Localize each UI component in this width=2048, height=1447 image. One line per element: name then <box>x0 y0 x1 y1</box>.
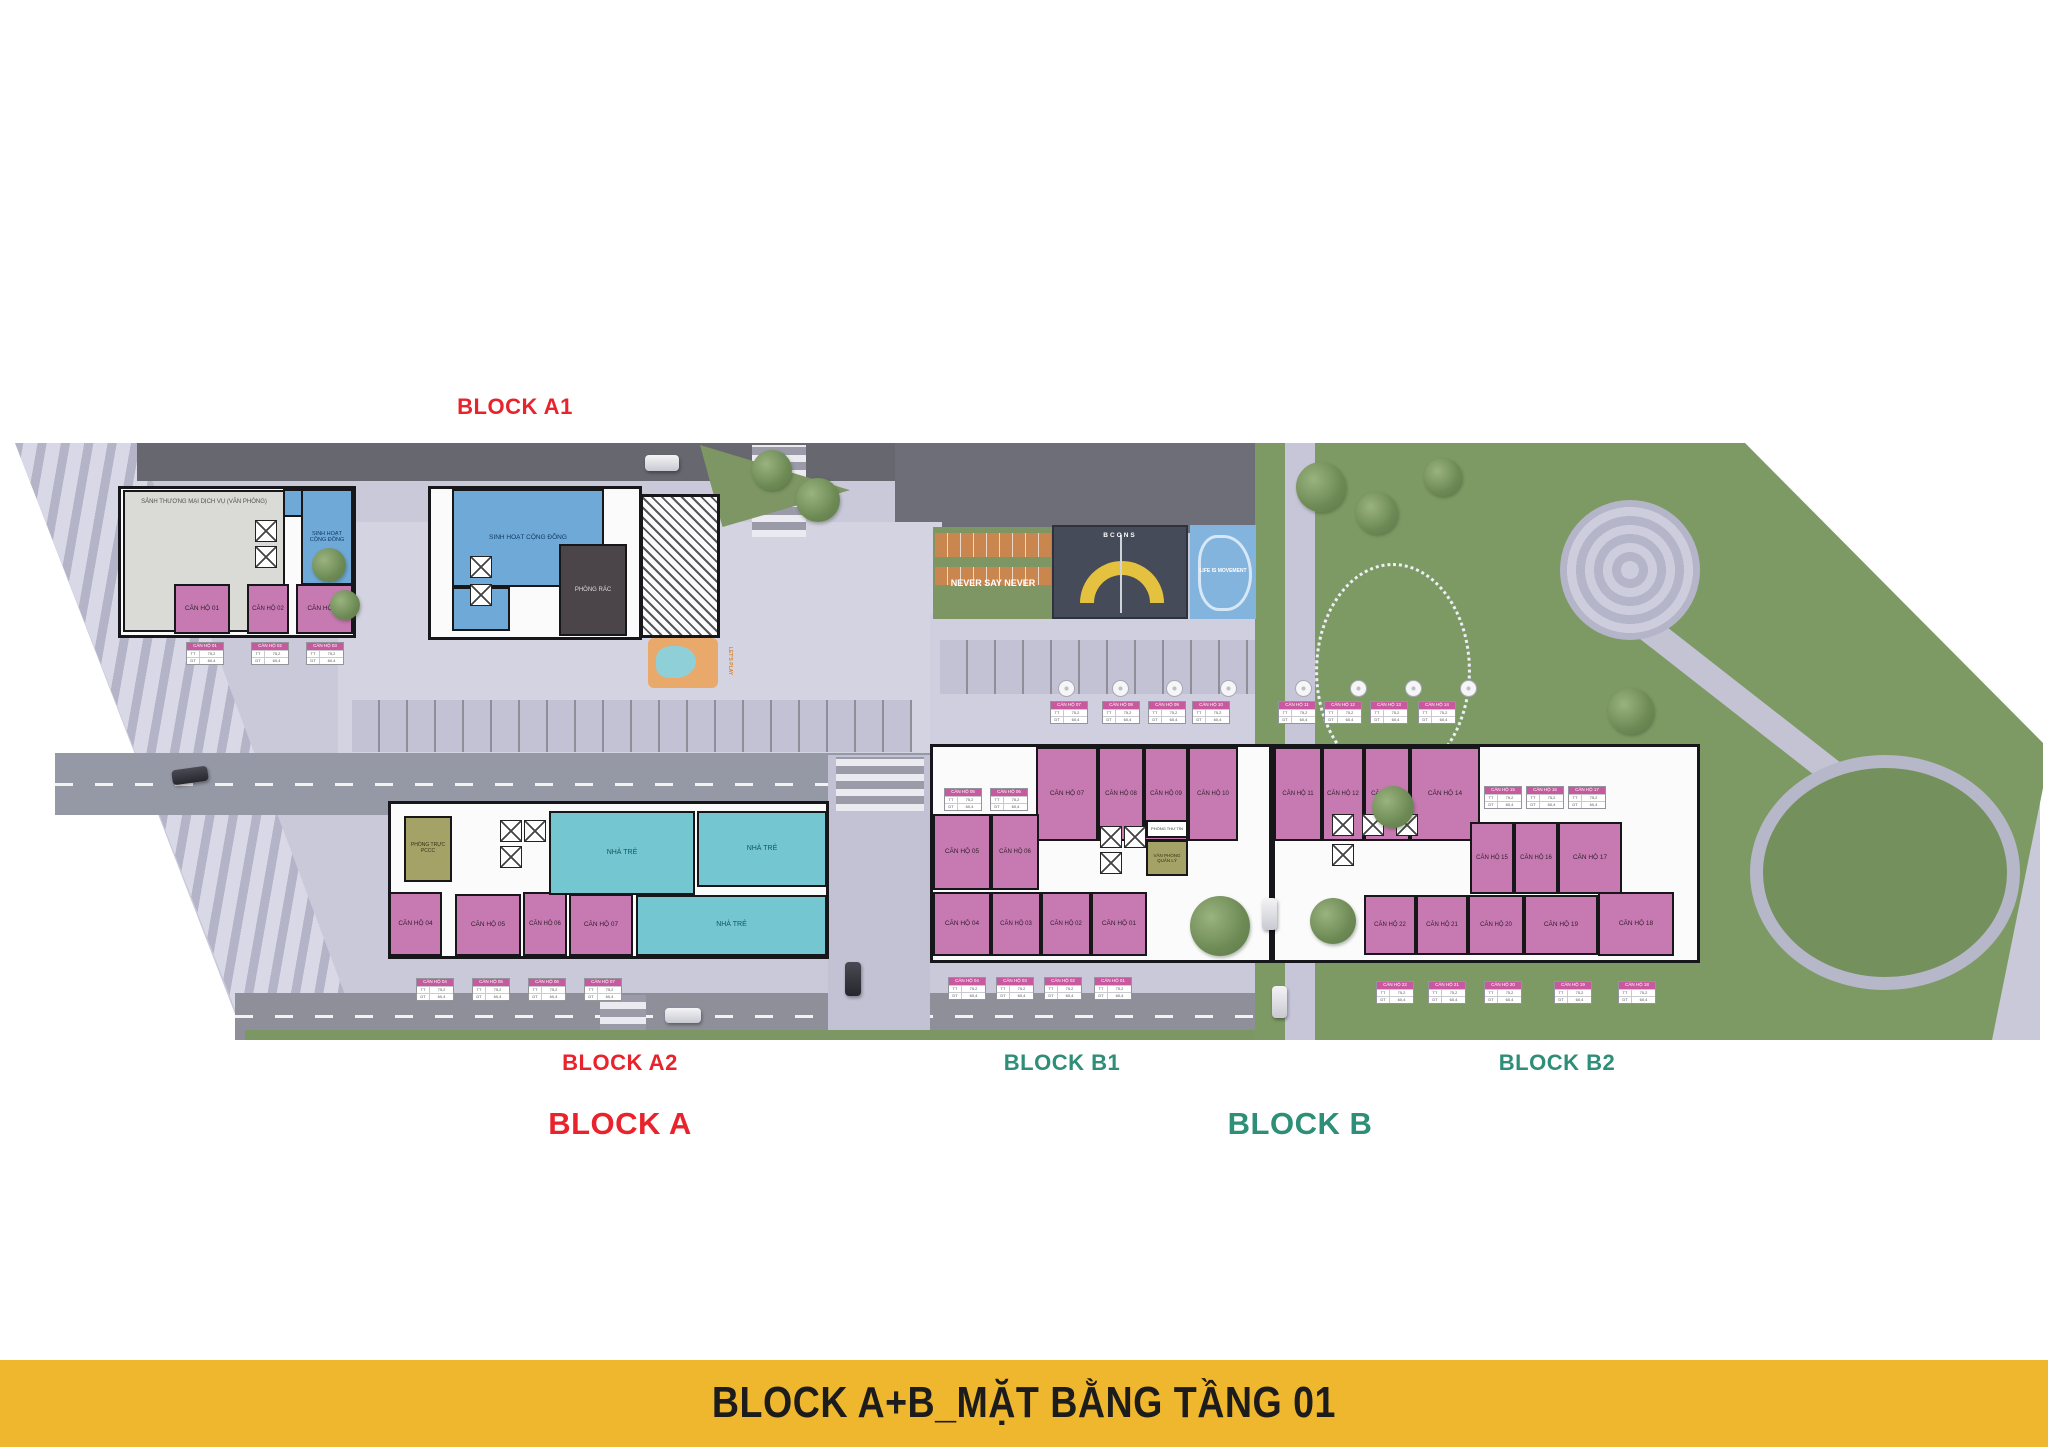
unit-table-key: DT <box>1527 802 1540 808</box>
unit-table-row: TT75,2 <box>417 986 453 993</box>
unit-table-row: DT60,4 <box>997 992 1033 999</box>
elevator-core <box>500 820 522 842</box>
unit-table-value: 60,4 <box>1432 717 1455 723</box>
unit-b2-19: CĂN HỘ 19 <box>1524 895 1598 955</box>
unit-table-value: 60,4 <box>1498 997 1521 1003</box>
umbrella <box>1405 680 1422 697</box>
unit-area-table: CĂN HỘ 12TT75,2DT60,4 <box>1324 701 1362 724</box>
unit-table-key: DT <box>1619 997 1632 1003</box>
unit-table-key: DT <box>1485 997 1498 1003</box>
unit-table-row: DT60,4 <box>991 803 1027 810</box>
unit-area-table: CĂN HỘ 16TT75,2DT60,4 <box>1526 786 1564 809</box>
unit-b2-17: CĂN HỘ 17 <box>1558 822 1622 894</box>
unit-area-table: CĂN HỘ 05TT75,2DT60,4 <box>944 788 982 811</box>
unit-table-value: 60,4 <box>1338 717 1361 723</box>
unit-table-value: 75,2 <box>598 987 621 993</box>
tree <box>330 590 360 620</box>
amphitheater <box>1560 500 1700 640</box>
room-kindergarten-3: NHÀ TRẺ <box>636 895 827 956</box>
unit-area-table: CĂN HỘ 14TT75,2DT60,4 <box>1418 701 1456 724</box>
fitness-slogan: NEVER SAY NEVER <box>933 578 1053 588</box>
unit-table-value: 60,4 <box>598 994 621 1000</box>
unit-table-row: DT60,4 <box>1485 801 1521 808</box>
unit-table-value: 60,4 <box>1390 997 1413 1003</box>
unit-table-value: 60,4 <box>1384 717 1407 723</box>
skate-slogan: LIFE IS MOVEMENT <box>1188 568 1258 574</box>
unit-table-value: 75,2 <box>542 987 565 993</box>
unit-table-value: 75,2 <box>1568 990 1591 996</box>
unit-b1-01: CĂN HỘ 01 <box>1091 892 1147 956</box>
unit-area-table: CĂN HỘ 17TT75,2DT60,4 <box>1568 786 1606 809</box>
room-mail: PHÒNG THƯ TÍN <box>1146 820 1188 838</box>
unit-table-row: TT75,2 <box>529 986 565 993</box>
unit-area-table: CĂN HỘ 18TT75,2DT60,4 <box>1618 981 1656 1004</box>
elevator-core <box>1100 826 1122 848</box>
unit-table-key: DT <box>473 994 486 1000</box>
unit-table-row: TT75,2 <box>585 986 621 993</box>
unit-table-row: TT75,2 <box>1619 989 1655 996</box>
unit-table-row: DT60,4 <box>529 993 565 1000</box>
unit-table-key: TT <box>1555 990 1568 996</box>
unit-table-row: TT75,2 <box>1371 709 1407 716</box>
room-kindergarten-1: NHÀ TRẺ <box>549 811 695 895</box>
unit-area-table: CĂN HỘ 08TT75,2DT60,4 <box>1102 701 1140 724</box>
room-management-office: VĂN PHÒNG QUẢN LÝ <box>1146 840 1188 876</box>
unit-area-table: CĂN HỘ 01TT75,2DT60,4 <box>186 642 224 665</box>
unit-area-table: CĂN HỘ 19TT75,2DT60,4 <box>1554 981 1592 1004</box>
unit-area-table: CĂN HỘ 15TT75,2DT60,4 <box>1484 786 1522 809</box>
unit-table-key: TT <box>991 797 1004 803</box>
block-b1-label: BLOCK B1 <box>982 1050 1142 1076</box>
unit-table-row: DT60,4 <box>252 657 288 664</box>
unit-b1-05: CĂN HỘ 05 <box>933 814 991 890</box>
unit-table-row: TT75,2 <box>945 796 981 803</box>
tree <box>1190 896 1250 956</box>
court-brand-text: BCONS <box>1052 532 1188 539</box>
unit-table-key: TT <box>1619 990 1632 996</box>
block-b2-label: BLOCK B2 <box>1477 1050 1637 1076</box>
unit-area-table: CĂN HỘ 05TT75,2DT60,4 <box>472 978 510 1001</box>
unit-table-row: DT60,4 <box>1279 716 1315 723</box>
unit-table-row: DT60,4 <box>1149 716 1185 723</box>
unit-table-row: DT60,4 <box>1569 801 1605 808</box>
unit-table-value: 75,2 <box>1540 795 1563 801</box>
umbrella <box>1058 680 1075 697</box>
elevator-core <box>1332 814 1354 836</box>
unit-table-key: TT <box>585 987 598 993</box>
unit-area-table: CĂN HỘ 11TT75,2DT60,4 <box>1278 701 1316 724</box>
unit-table-value: 60,4 <box>1498 802 1521 808</box>
unit-table-key: DT <box>1095 993 1108 999</box>
elevator-core <box>1124 826 1146 848</box>
unit-table-row: TT75,2 <box>1103 709 1139 716</box>
unit-b2-11: CĂN HỘ 11 <box>1274 747 1322 841</box>
room-fire-duty: PHÒNG TRỰC PCCC <box>404 816 452 882</box>
car <box>1272 986 1287 1018</box>
unit-area-table: CĂN HỘ 20TT75,2DT60,4 <box>1484 981 1522 1004</box>
unit-table-key: TT <box>252 651 265 657</box>
unit-table-key: TT <box>1103 710 1116 716</box>
unit-table-key: DT <box>1377 997 1390 1003</box>
unit-area-table: CĂN HỘ 07TT75,2DT60,4 <box>584 978 622 1001</box>
unit-table-key: DT <box>529 994 542 1000</box>
playground-slogan: LET'S PLAY <box>727 631 733 691</box>
unit-area-table: CĂN HỘ 03TT75,2DT60,4 <box>996 977 1034 1000</box>
unit-table-key: TT <box>1325 710 1338 716</box>
unit-table-value: 75,2 <box>1442 990 1465 996</box>
unit-table-key: TT <box>997 986 1010 992</box>
unit-table-value: 75,2 <box>1004 797 1027 803</box>
unit-area-table: CĂN HỘ 02TT75,2DT60,4 <box>1044 977 1082 1000</box>
unit-table-key: DT <box>949 993 962 999</box>
elevator-core <box>1100 852 1122 874</box>
unit-table-row: DT60,4 <box>1429 996 1465 1003</box>
unit-area-table: CĂN HỘ 13TT75,2DT60,4 <box>1370 701 1408 724</box>
unit-area-table: CĂN HỘ 04TT75,2DT60,4 <box>948 977 986 1000</box>
unit-table-row: DT60,4 <box>585 993 621 1000</box>
unit-area-table: CĂN HỘ 22TT75,2DT60,4 <box>1376 981 1414 1004</box>
unit-table-row: TT75,2 <box>1569 794 1605 801</box>
unit-a2-06: CĂN HỘ 06 <box>523 892 567 956</box>
unit-table-value: 60,4 <box>1582 802 1605 808</box>
unit-a2-04: CĂN HỘ 04 <box>389 892 442 956</box>
unit-a2-07: CĂN HỘ 07 <box>569 894 633 956</box>
unit-table-key: TT <box>307 651 320 657</box>
unit-table-row: DT60,4 <box>1095 992 1131 999</box>
unit-table-key: DT <box>1555 997 1568 1003</box>
unit-table-value: 60,4 <box>1540 802 1563 808</box>
room-kindergarten-2: NHÀ TRẺ <box>697 811 827 887</box>
unit-table-row: TT75,2 <box>997 985 1033 992</box>
unit-table-key: DT <box>1569 802 1582 808</box>
unit-table-key: DT <box>1325 717 1338 723</box>
unit-a1-02: CĂN HỘ 02 <box>247 584 289 634</box>
site-plan-page: NEVER SAY NEVER BCONS LIFE IS MOVEMENT L… <box>0 0 2048 1447</box>
unit-table-value: 75,2 <box>1498 990 1521 996</box>
unit-table-value: 75,2 <box>1498 795 1521 801</box>
unit-table-key: TT <box>1045 986 1058 992</box>
umbrella <box>1166 680 1183 697</box>
tree <box>752 450 792 490</box>
unit-table-row: TT75,2 <box>1419 709 1455 716</box>
tree <box>312 548 346 582</box>
court-centerline <box>1120 535 1122 613</box>
unit-table-value: 75,2 <box>1632 990 1655 996</box>
unit-table-value: 60,4 <box>542 994 565 1000</box>
tree <box>1424 458 1462 496</box>
unit-table-row: DT60,4 <box>1619 996 1655 1003</box>
unit-table-key: DT <box>1371 717 1384 723</box>
unit-table-key: TT <box>1485 795 1498 801</box>
page-title: BLOCK A+B_MẶT BẰNG TẦNG 01 <box>712 1379 1336 1428</box>
playground <box>648 638 718 688</box>
unit-table-key: DT <box>1279 717 1292 723</box>
unit-table-value: 60,4 <box>1116 717 1139 723</box>
unit-table-value: 60,4 <box>1442 997 1465 1003</box>
unit-table-value: 60,4 <box>265 658 288 664</box>
unit-b2-22: CĂN HỘ 22 <box>1364 895 1416 955</box>
unit-b2-21: CĂN HỘ 21 <box>1416 895 1468 955</box>
unit-b1-07: CĂN HỘ 07 <box>1036 747 1098 841</box>
unit-table-row: DT60,4 <box>1527 801 1563 808</box>
parking-ramp <box>640 494 720 638</box>
unit-table-row: TT75,2 <box>1193 709 1229 716</box>
running-track <box>935 533 1051 557</box>
car <box>1262 898 1277 930</box>
car <box>665 1008 701 1023</box>
unit-area-table: CĂN HỘ 21TT75,2DT60,4 <box>1428 981 1466 1004</box>
unit-b2-16: CĂN HỘ 16 <box>1514 822 1558 894</box>
unit-a1-01: CĂN HỘ 01 <box>174 584 230 634</box>
unit-table-key: TT <box>1051 710 1064 716</box>
unit-table-value: 75,2 <box>1108 986 1131 992</box>
unit-table-value: 60,4 <box>958 804 981 810</box>
unit-table-row: TT75,2 <box>991 796 1027 803</box>
car <box>845 962 861 996</box>
unit-b2-18: CĂN HỘ 18 <box>1598 892 1674 956</box>
basketball-court <box>1052 525 1188 619</box>
unit-table-row: TT75,2 <box>1485 989 1521 996</box>
unit-table-value: 75,2 <box>430 987 453 993</box>
car <box>645 455 679 471</box>
elevator-core <box>524 820 546 842</box>
unit-area-table: CĂN HỘ 04TT75,2DT60,4 <box>416 978 454 1001</box>
unit-table-key: DT <box>1103 717 1116 723</box>
unit-table-row: DT60,4 <box>417 993 453 1000</box>
elevator-core <box>470 584 492 606</box>
unit-table-key: DT <box>1149 717 1162 723</box>
unit-area-table: CĂN HỘ 09TT75,2DT60,4 <box>1148 701 1186 724</box>
unit-table-value: 60,4 <box>1632 997 1655 1003</box>
title-banner: BLOCK A+B_MẶT BẰNG TẦNG 01 <box>0 1360 2048 1447</box>
unit-table-row: DT60,4 <box>1485 996 1521 1003</box>
unit-table-value: 60,4 <box>1064 717 1087 723</box>
tree <box>1608 688 1654 734</box>
unit-table-key: TT <box>1429 990 1442 996</box>
umbrella <box>1350 680 1367 697</box>
unit-table-value: 75,2 <box>958 797 981 803</box>
unit-table-key: TT <box>1485 990 1498 996</box>
unit-table-value: 60,4 <box>1292 717 1315 723</box>
elevator-core <box>470 556 492 578</box>
unit-table-key: TT <box>1279 710 1292 716</box>
unit-table-row: TT75,2 <box>1555 989 1591 996</box>
umbrella <box>1220 680 1237 697</box>
unit-table-key: TT <box>1527 795 1540 801</box>
elevator-core <box>255 546 277 568</box>
crosswalk <box>836 757 924 811</box>
unit-area-table: CĂN HỘ 03TT75,2DT60,4 <box>306 642 344 665</box>
tree <box>1356 492 1398 534</box>
unit-table-key: DT <box>1485 802 1498 808</box>
unit-b1-02: CĂN HỘ 02 <box>1041 892 1091 956</box>
unit-table-value: 75,2 <box>1390 990 1413 996</box>
unit-table-row: TT75,2 <box>1045 985 1081 992</box>
unit-area-table: CĂN HỘ 01TT75,2DT60,4 <box>1094 977 1132 1000</box>
unit-table-value: 75,2 <box>265 651 288 657</box>
unit-table-key: DT <box>997 993 1010 999</box>
unit-table-key: DT <box>1051 717 1064 723</box>
unit-table-row: DT60,4 <box>307 657 343 664</box>
unit-table-value: 60,4 <box>1010 993 1033 999</box>
unit-table-value: 75,2 <box>1058 986 1081 992</box>
unit-table-key: TT <box>473 987 486 993</box>
unit-area-table: CĂN HỘ 07TT75,2DT60,4 <box>1050 701 1088 724</box>
elevator-core <box>255 520 277 542</box>
unit-table-key: DT <box>1429 997 1442 1003</box>
unit-table-row: TT75,2 <box>1377 989 1413 996</box>
unit-table-row: TT75,2 <box>1095 985 1131 992</box>
unit-table-value: 60,4 <box>200 658 223 664</box>
unit-table-key: DT <box>585 994 598 1000</box>
unit-table-key: TT <box>1569 795 1582 801</box>
unit-table-key: DT <box>307 658 320 664</box>
umbrella <box>1460 680 1477 697</box>
tree <box>1296 462 1346 512</box>
umbrella <box>1112 680 1129 697</box>
unit-table-value: 75,2 <box>962 986 985 992</box>
unit-table-value: 75,2 <box>1384 710 1407 716</box>
fitness-zone <box>933 527 1053 619</box>
unit-table-key: TT <box>1377 990 1390 996</box>
unit-table-row: DT60,4 <box>1193 716 1229 723</box>
unit-table-value: 60,4 <box>430 994 453 1000</box>
unit-table-row: DT60,4 <box>1555 996 1591 1003</box>
lawn-strip <box>245 1030 1330 1040</box>
unit-table-row: TT75,2 <box>949 985 985 992</box>
unit-table-key: TT <box>529 987 542 993</box>
unit-table-key: TT <box>1371 710 1384 716</box>
unit-table-value: 60,4 <box>1206 717 1229 723</box>
unit-table-value: 75,2 <box>1116 710 1139 716</box>
unit-table-value: 75,2 <box>1162 710 1185 716</box>
unit-area-table: CĂN HỘ 06TT75,2DT60,4 <box>528 978 566 1001</box>
unit-table-value: 60,4 <box>1058 993 1081 999</box>
unit-table-row: DT60,4 <box>1325 716 1361 723</box>
unit-table-key: TT <box>1419 710 1432 716</box>
unit-table-row: DT60,4 <box>1419 716 1455 723</box>
unit-table-value: 60,4 <box>1162 717 1185 723</box>
unit-table-row: TT75,2 <box>1325 709 1361 716</box>
unit-table-key: DT <box>1419 717 1432 723</box>
unit-table-value: 75,2 <box>320 651 343 657</box>
unit-table-key: TT <box>187 651 200 657</box>
unit-table-value: 75,2 <box>1432 710 1455 716</box>
unit-table-value: 75,2 <box>1292 710 1315 716</box>
unit-table-value: 75,2 <box>200 651 223 657</box>
unit-table-value: 60,4 <box>1568 997 1591 1003</box>
unit-table-row: TT75,2 <box>1279 709 1315 716</box>
unit-a2-05: CĂN HỘ 05 <box>455 894 521 956</box>
unit-table-row: DT60,4 <box>187 657 223 664</box>
unit-table-key: DT <box>1045 993 1058 999</box>
unit-table-key: DT <box>1193 717 1206 723</box>
unit-table-row: TT75,2 <box>1527 794 1563 801</box>
room-community-annex <box>283 489 303 517</box>
road-centerline <box>235 1015 1330 1018</box>
unit-table-row: TT75,2 <box>187 650 223 657</box>
unit-b1-04: CĂN HỘ 04 <box>933 892 991 956</box>
unit-table-row: DT60,4 <box>1051 716 1087 723</box>
unit-table-key: TT <box>945 797 958 803</box>
block-a2-label: BLOCK A2 <box>540 1050 700 1076</box>
unit-table-row: DT60,4 <box>1377 996 1413 1003</box>
unit-table-value: 60,4 <box>1004 804 1027 810</box>
umbrella <box>1295 680 1312 697</box>
tree <box>1310 898 1356 944</box>
unit-table-value: 75,2 <box>1010 986 1033 992</box>
unit-table-value: 75,2 <box>1582 795 1605 801</box>
unit-table-row: TT75,2 <box>252 650 288 657</box>
unit-table-key: DT <box>252 658 265 664</box>
unit-table-value: 75,2 <box>1064 710 1087 716</box>
unit-table-row: DT60,4 <box>473 993 509 1000</box>
unit-table-row: TT75,2 <box>1429 989 1465 996</box>
unit-table-value: 60,4 <box>320 658 343 664</box>
unit-table-key: DT <box>991 804 1004 810</box>
unit-table-key: TT <box>949 986 962 992</box>
unit-table-value: 75,2 <box>1338 710 1361 716</box>
unit-b1-06: CĂN HỘ 06 <box>991 814 1039 890</box>
unit-table-key: TT <box>417 987 430 993</box>
tree <box>1372 786 1414 828</box>
unit-table-row: DT60,4 <box>949 992 985 999</box>
unit-table-key: DT <box>945 804 958 810</box>
playground-pad <box>656 646 696 678</box>
unit-table-row: TT75,2 <box>1051 709 1087 716</box>
unit-table-row: TT75,2 <box>473 986 509 993</box>
unit-b2-20: CĂN HỘ 20 <box>1468 895 1524 955</box>
block-b-label: BLOCK B <box>1200 1106 1400 1142</box>
elevator-core <box>1332 844 1354 866</box>
loop-lawn <box>1750 755 2020 990</box>
unit-table-row: DT60,4 <box>1045 992 1081 999</box>
unit-table-key: TT <box>1149 710 1162 716</box>
unit-table-key: TT <box>1095 986 1108 992</box>
unit-table-value: 60,4 <box>962 993 985 999</box>
block-a1-label: BLOCK A1 <box>435 394 595 420</box>
room-trash: PHÒNG RÁC <box>559 544 627 636</box>
unit-table-key: TT <box>1193 710 1206 716</box>
unit-table-key: DT <box>187 658 200 664</box>
unit-b1-10: CĂN HỘ 10 <box>1188 747 1238 841</box>
unit-area-table: CĂN HỘ 06TT75,2DT60,4 <box>990 788 1028 811</box>
unit-table-row: TT75,2 <box>1485 794 1521 801</box>
parking-stalls-a <box>352 700 912 752</box>
unit-table-row: DT60,4 <box>1103 716 1139 723</box>
unit-table-value: 75,2 <box>486 987 509 993</box>
unit-table-key: DT <box>417 994 430 1000</box>
unit-b1-03: CĂN HỘ 03 <box>991 892 1041 956</box>
tree <box>796 478 840 522</box>
unit-table-row: TT75,2 <box>1149 709 1185 716</box>
tower-shadow-mid <box>895 443 1258 533</box>
elevator-core <box>500 846 522 868</box>
block-a-label: BLOCK A <box>520 1106 720 1142</box>
unit-b2-15: CĂN HỘ 15 <box>1470 822 1514 894</box>
unit-table-row: DT60,4 <box>1371 716 1407 723</box>
unit-table-row: DT60,4 <box>945 803 981 810</box>
unit-table-value: 75,2 <box>1206 710 1229 716</box>
unit-area-table: CĂN HỘ 02TT75,2DT60,4 <box>251 642 289 665</box>
unit-area-table: CĂN HỘ 10TT75,2DT60,4 <box>1192 701 1230 724</box>
unit-table-value: 60,4 <box>486 994 509 1000</box>
unit-table-row: TT75,2 <box>307 650 343 657</box>
unit-table-value: 60,4 <box>1108 993 1131 999</box>
